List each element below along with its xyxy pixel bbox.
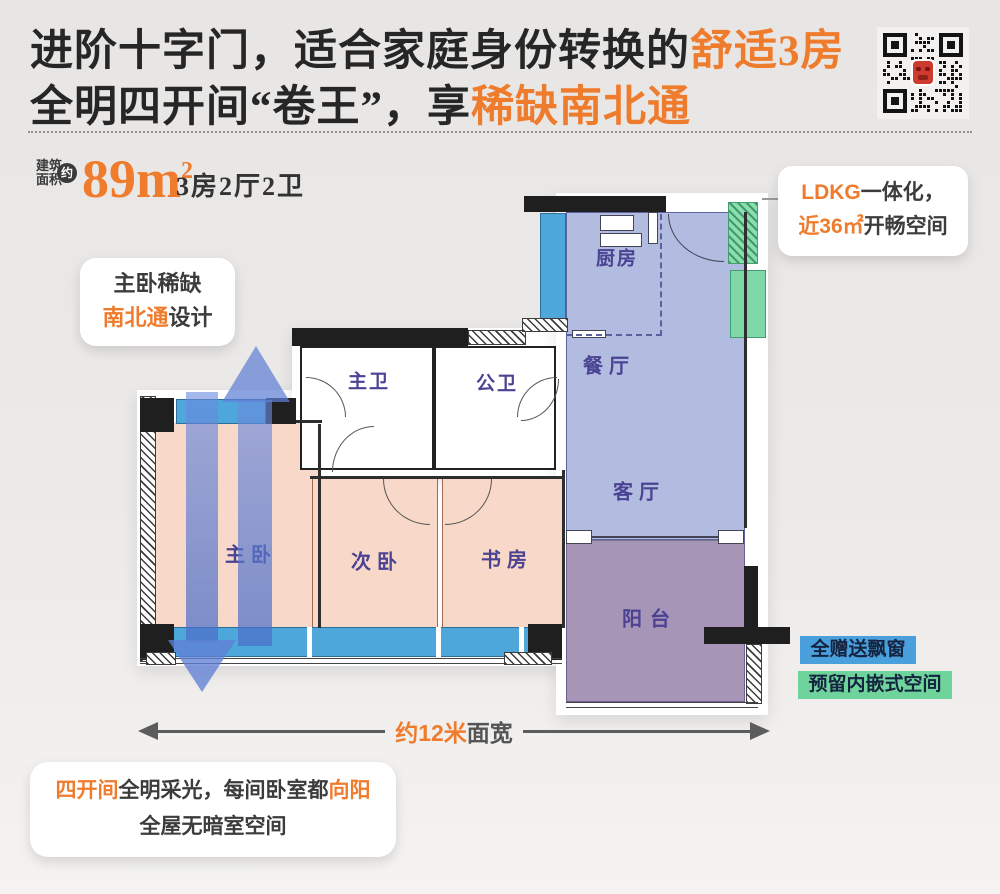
window-mullion bbox=[436, 627, 441, 657]
airflow-arrow-down-shaft bbox=[186, 392, 218, 642]
balcony-door-track bbox=[592, 536, 718, 538]
airflow-arrow-down-icon bbox=[168, 640, 236, 692]
embedded-space-block bbox=[730, 270, 766, 338]
callout-master-ns: 主卧稀缺 南北通设计 bbox=[80, 258, 235, 346]
approx-badge: 约 bbox=[57, 163, 77, 183]
wall-segment bbox=[522, 318, 568, 332]
qr-code bbox=[877, 27, 969, 119]
width-dimension: 约12米面宽 bbox=[138, 716, 770, 746]
page-title-line2: 全明四开间“卷王”，享稀缺南北通 bbox=[30, 80, 691, 136]
wall-segment bbox=[504, 652, 552, 665]
qr-mascot-icon bbox=[911, 59, 935, 86]
title-line1-dark: 进阶十字门，适合家庭身份转换的 bbox=[30, 28, 690, 75]
kitchen-dashed-zone bbox=[566, 214, 662, 336]
label-study: 书房 bbox=[475, 544, 533, 573]
tag-embedded-space: 预留内嵌式空间 bbox=[798, 671, 952, 699]
wall-segment bbox=[524, 196, 666, 212]
wall-segment bbox=[562, 470, 565, 628]
wall-segment bbox=[140, 398, 174, 432]
wall-segment bbox=[140, 396, 156, 662]
wall-segment bbox=[318, 424, 321, 628]
callout-bottom: 四开间全明采光，每间卧室都向阳 全屋无暗室空间 bbox=[30, 762, 396, 857]
dimension-line bbox=[523, 730, 750, 733]
wall-segment bbox=[310, 476, 565, 479]
room-master-bedroom bbox=[150, 422, 320, 628]
wall-segment bbox=[468, 330, 526, 345]
wall-segment bbox=[296, 420, 322, 423]
dimension-line bbox=[158, 730, 385, 733]
embedded-space-block bbox=[728, 202, 758, 264]
dimension-text: 约12米面宽 bbox=[385, 714, 523, 748]
arrow-left-icon bbox=[138, 722, 158, 740]
title-line2-accent: 稀缺南北通 bbox=[471, 84, 691, 131]
arrow-right-icon bbox=[750, 722, 770, 740]
header-divider bbox=[28, 131, 972, 133]
wall-segment bbox=[746, 644, 762, 704]
label-second-bedroom: 次卧 bbox=[345, 546, 403, 575]
label-kitchen: 厨房 bbox=[594, 244, 638, 271]
poster: 进阶十字门，适合家庭身份转换的舒适3房 全明四开间“卷王”，享稀缺南北通 建筑 … bbox=[0, 0, 1000, 894]
callout-ldkg: LDKG一体化， 近36㎡开畅空间 bbox=[778, 166, 968, 256]
balcony-door-pier bbox=[718, 530, 744, 544]
wall-segment bbox=[744, 212, 747, 528]
page-title-line1: 进阶十字门，适合家庭身份转换的舒适3房 bbox=[30, 24, 845, 80]
balcony-door-track bbox=[592, 540, 718, 541]
wall-segment bbox=[292, 328, 468, 346]
area-room-count: 3房2厅2卫 bbox=[176, 166, 305, 203]
label-balcony: 阳台 bbox=[614, 603, 678, 632]
title-line1-accent: 舒适3房 bbox=[690, 28, 845, 75]
label-public-bath: 公卫 bbox=[474, 369, 518, 396]
label-master-bath: 主卫 bbox=[346, 367, 390, 394]
airflow-arrow-up-icon bbox=[222, 346, 290, 402]
window-kitchen bbox=[540, 213, 566, 319]
tag-bay-window: 全赠送飘窗 bbox=[800, 636, 916, 664]
label-living: 客厅 bbox=[607, 476, 665, 505]
airflow-arrow-up-shaft bbox=[238, 400, 272, 646]
label-dining: 餐厅 bbox=[577, 350, 635, 379]
title-line2-dark: 全明四开间“卷王”，享 bbox=[30, 84, 471, 131]
balcony-door-pier bbox=[566, 530, 592, 544]
window-mullion bbox=[307, 627, 312, 657]
wall-sill-line bbox=[566, 702, 758, 708]
wall-segment bbox=[704, 627, 790, 644]
